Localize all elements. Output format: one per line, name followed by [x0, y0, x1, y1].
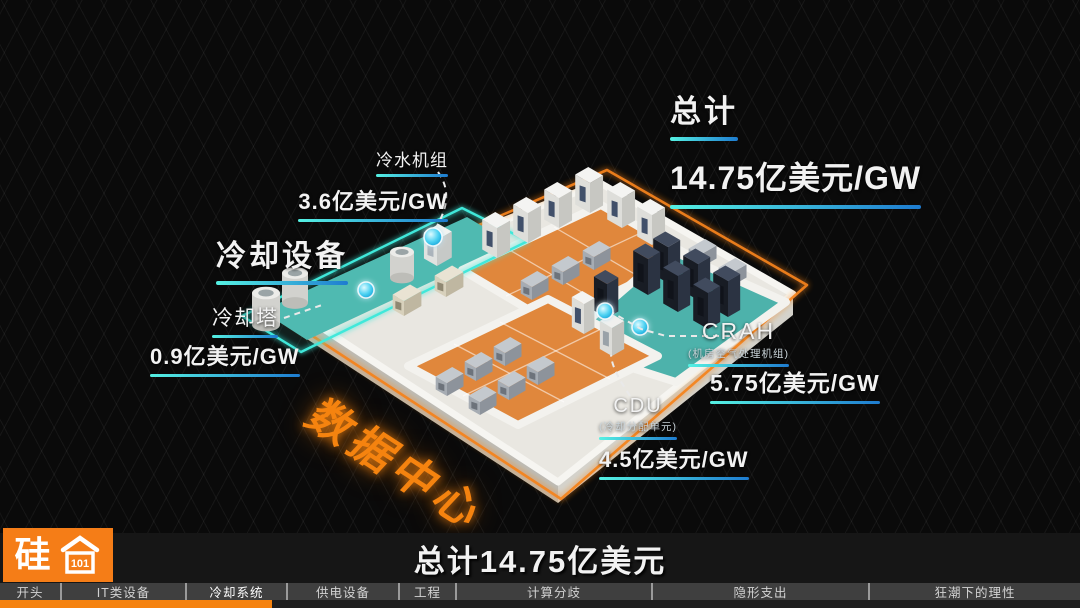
cooling-tower-icon [390, 247, 414, 284]
channel-logo: 硅 101 [3, 528, 113, 582]
chapter-tabbar: 开头IT类设备冷却系统供电设备工程计算分歧隐形支出狂潮下的理性 [0, 583, 1080, 600]
chapter-tab-3[interactable]: 冷却系统 [187, 583, 288, 600]
crah-sublabel: (机房空气处理机组) [688, 346, 789, 361]
underline [599, 477, 749, 480]
cab-unit-icon [572, 291, 595, 334]
cooling-tower-label: 冷却塔 [212, 307, 278, 330]
chapter-tab-7[interactable]: 隐形支出 [653, 583, 870, 600]
cooling-tower-value: 0.9亿美元/GW [150, 344, 300, 369]
total-label: 总计 [670, 94, 738, 129]
underline [212, 335, 278, 338]
cab-unit-icon [575, 167, 603, 213]
chapter-tab-6[interactable]: 计算分歧 [457, 583, 653, 600]
cab-unit-icon [544, 182, 572, 228]
video-progress-fill [0, 600, 272, 608]
video-progress-track[interactable] [0, 600, 1080, 608]
cdu-value-block: 4.5亿美元/GW [599, 442, 749, 480]
cdu-sublabel: (冷却分配单元) [599, 419, 677, 434]
chapter-tab-8[interactable]: 狂潮下的理性 [870, 583, 1080, 600]
cab-unit-icon [513, 197, 541, 243]
logo-house-icon: 101 [58, 533, 102, 577]
logo-text: 硅 [14, 537, 50, 573]
rack-unit-icon [633, 244, 660, 296]
cooling-equipment-label: 冷却设备 [216, 240, 348, 273]
crah-value: 5.75亿美元/GW [710, 370, 880, 396]
logo-badge: 101 [70, 558, 88, 570]
crah-dot2-icon [632, 319, 648, 335]
underline [670, 137, 738, 141]
video-slide: 数据中心 冷水机组 3.6亿美元/GW 冷却设备 冷却塔 0.9亿美元/GW 总… [0, 0, 1080, 608]
chiller-dot-icon [424, 228, 442, 246]
chapter-tab-4[interactable]: 供电设备 [288, 583, 400, 600]
underline [150, 374, 300, 377]
rack-unit-icon [663, 261, 690, 313]
cooling-tower-value-block: 0.9亿美元/GW [150, 339, 300, 377]
underline [298, 219, 448, 222]
crah-label: CRAH [688, 318, 789, 345]
chapter-tab-1[interactable]: 开头 [0, 583, 62, 600]
chapter-tab-2[interactable]: IT类设备 [62, 583, 187, 600]
underline [376, 174, 448, 177]
cdu-value: 4.5亿美元/GW [599, 447, 749, 472]
summary-title: 总计14.75亿美元 [414, 536, 667, 581]
total-callout: 总计 14.75亿美元/GW [670, 86, 921, 209]
callout-chiller: 冷水机组 3.6亿美元/GW [298, 146, 448, 222]
underline [216, 281, 348, 285]
underline [599, 437, 677, 440]
crah-value-block: 5.75亿美元/GW [710, 364, 880, 404]
cooling-equipment-heading: 冷却设备 [216, 231, 348, 285]
underline [670, 205, 921, 209]
chiller-value: 3.6亿美元/GW [298, 189, 448, 214]
cab-unit-icon [607, 182, 635, 228]
callout-cooling-tower: 冷却塔 [212, 302, 278, 338]
cooling-tower-dot-icon [358, 282, 374, 298]
summary-bar: 总计14.75亿美元 [0, 533, 1080, 583]
cdu-unit-icon [600, 314, 624, 356]
cdu-label: CDU [599, 395, 677, 418]
callout-cdu: CDU (冷却分配单元) [599, 395, 677, 440]
chapter-tab-5[interactable]: 工程 [400, 583, 457, 600]
callout-crah: CRAH (机房空气处理机组) [688, 318, 789, 367]
crah-dot-icon [597, 303, 613, 319]
cab-unit-icon [482, 212, 510, 258]
chiller-label: 冷水机组 [376, 151, 448, 170]
underline [710, 401, 880, 404]
total-value: 14.75亿美元/GW [670, 160, 921, 196]
